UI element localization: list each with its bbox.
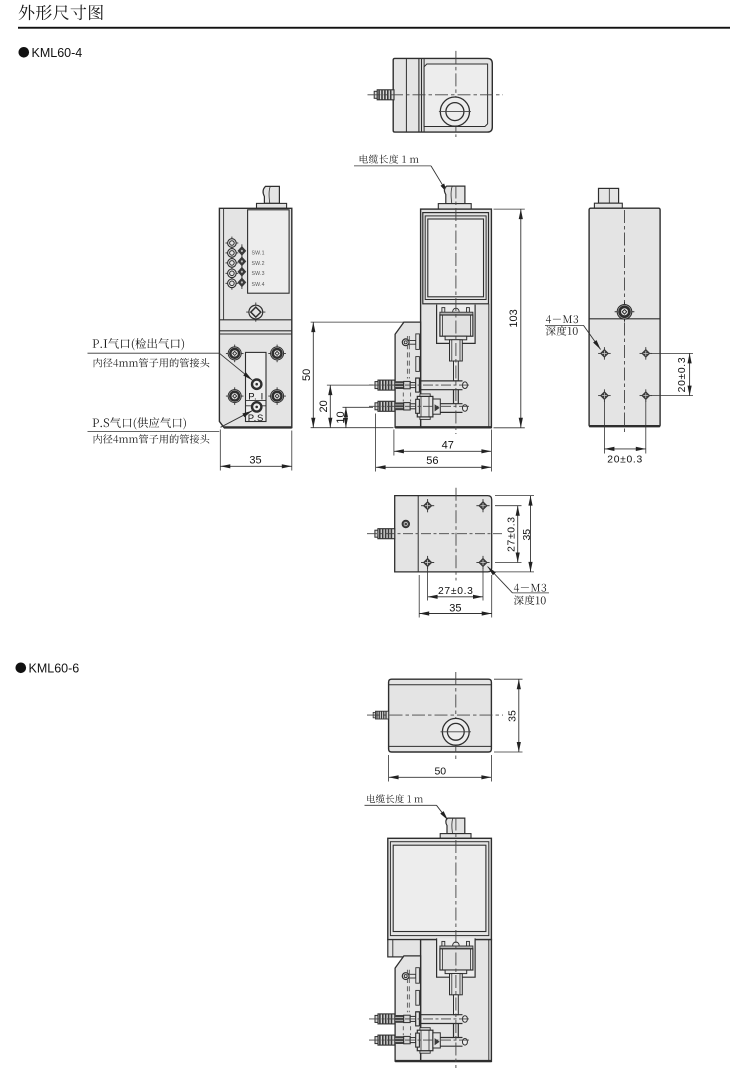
svg-text:SW.4: SW.4 [252, 282, 265, 288]
svg-text:50: 50 [301, 369, 313, 381]
svg-text:27±0.3: 27±0.3 [438, 586, 474, 597]
svg-text:50: 50 [434, 766, 446, 778]
svg-text:KML60-6: KML60-6 [29, 662, 80, 676]
svg-text:103: 103 [508, 309, 520, 327]
svg-text:20±0.3: 20±0.3 [677, 357, 688, 393]
svg-text:SW.3: SW.3 [252, 271, 265, 277]
svg-text:56: 56 [426, 455, 438, 467]
svg-text:20±0.3: 20±0.3 [607, 454, 643, 465]
svg-text:35: 35 [449, 603, 461, 615]
svg-text:35: 35 [249, 455, 261, 467]
svg-text:27±0.3: 27±0.3 [506, 516, 517, 552]
svg-text:47: 47 [442, 439, 454, 451]
svg-text:P.S: P.S [248, 413, 264, 424]
svg-text:20: 20 [318, 400, 330, 412]
svg-text:35: 35 [506, 710, 518, 722]
svg-text:35: 35 [521, 529, 533, 541]
svg-text:KML60-4: KML60-4 [32, 46, 83, 60]
svg-text:10: 10 [335, 411, 347, 423]
svg-text:SW.2: SW.2 [252, 261, 265, 267]
svg-text:SW.1: SW.1 [252, 250, 265, 256]
svg-text:P. I: P. I [248, 391, 264, 402]
